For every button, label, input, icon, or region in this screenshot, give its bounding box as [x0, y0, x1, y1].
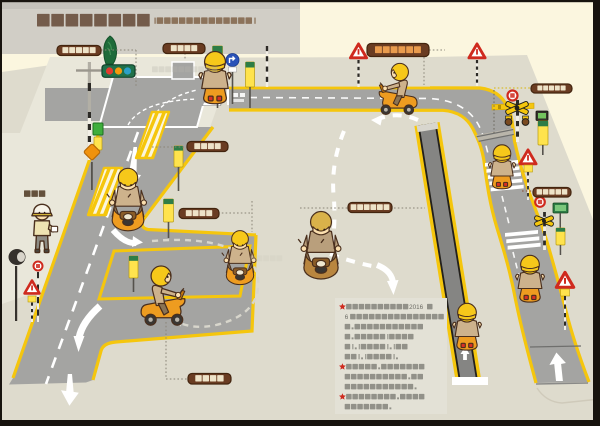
- svg-text:6: 6: [345, 314, 349, 321]
- svg-text:2016: 2016: [409, 304, 424, 311]
